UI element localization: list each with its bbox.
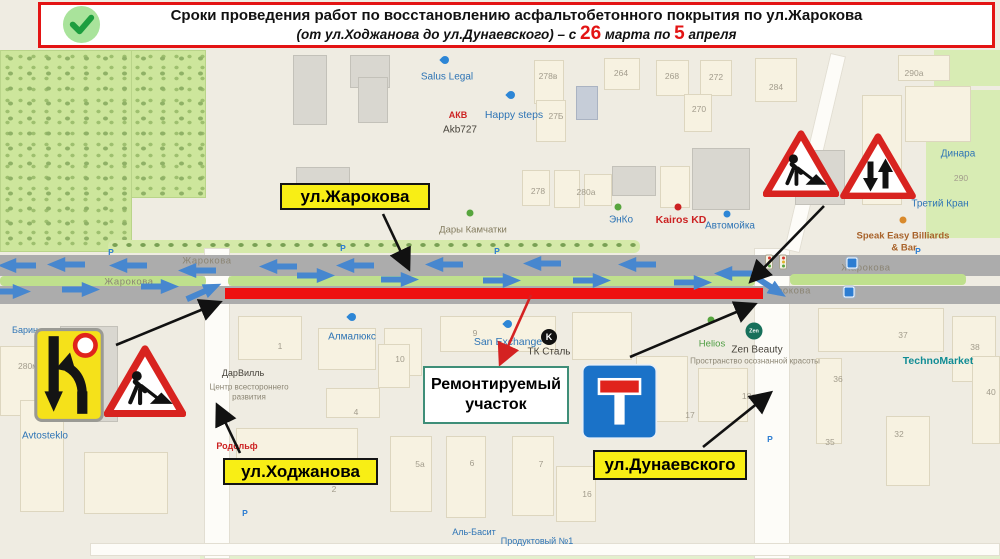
banner-subtitle-prefix: (от ул.Ходжанова до ул.Дунаевского) – с [296, 27, 580, 42]
street-name-label: Жарокова [182, 256, 231, 267]
building-number: 264 [614, 68, 628, 78]
building [755, 58, 797, 102]
building-number: 290а [905, 68, 924, 78]
building [293, 55, 327, 125]
header-banner: Сроки проведения работ по восстановлению… [38, 2, 995, 48]
building-number: 272 [709, 72, 723, 82]
parking-icon: P [761, 393, 767, 403]
poi-label: & Bar [891, 243, 916, 254]
road-median-green [790, 274, 966, 285]
brand-logo-icon: Zen [746, 323, 763, 340]
road-median-green [0, 276, 206, 286]
building [660, 166, 690, 208]
poi-label: Happy steps [485, 109, 543, 121]
building-number: 7 [539, 459, 544, 469]
building [886, 416, 930, 486]
building-number: 37 [898, 330, 907, 340]
poi-label: Аль-Басит [452, 527, 496, 537]
poi-dot-icon [675, 204, 682, 211]
label-zharokova-street: ул.Жарокова [280, 183, 430, 210]
poi-label: Продуктовый №1 [501, 536, 574, 546]
building [512, 436, 554, 516]
building-number: 270 [692, 104, 706, 114]
building [698, 368, 748, 422]
building-number: 280а [577, 187, 596, 197]
building-number: 36 [833, 374, 842, 384]
poi-label: Пространство осознанной красоты [690, 357, 820, 366]
building-number: 268 [665, 71, 679, 81]
end-date: 5 [674, 23, 685, 44]
building-number: 17 [685, 410, 694, 420]
building [536, 100, 566, 142]
building [972, 356, 1000, 444]
building [816, 358, 842, 444]
building [576, 86, 598, 120]
poi-label: ТК Сталь [527, 347, 570, 358]
poi-label: TechnoMarket [903, 355, 973, 367]
building-number: 40 [986, 387, 995, 397]
start-date: 26 [580, 23, 601, 44]
building-number: 278в [539, 71, 558, 81]
building [446, 436, 486, 518]
bus-stop-icon [844, 287, 855, 298]
poi-label: Автомойка [705, 221, 755, 232]
poi-label: Helios [699, 339, 725, 350]
dead-end-sign-icon [581, 363, 658, 440]
repair-section-callout: Ремонтируемый участок [423, 366, 569, 424]
building-number: 2 [332, 484, 337, 494]
two-way-traffic-sign-icon [840, 133, 916, 199]
building-number: 32 [894, 429, 903, 439]
roadworks-warning-sign-icon [763, 130, 839, 197]
poi-dot-icon [900, 217, 907, 224]
building-number: 6 [470, 458, 475, 468]
green-area [108, 240, 640, 253]
building [534, 60, 564, 104]
poi-label: Avtosteklo [22, 431, 68, 442]
label-khodzhanova-street: ул.Ходжанова [223, 458, 378, 485]
roadworks-announcement-image: ЖароковаЖароковаЖароковароковаSalus Lega… [0, 0, 1000, 559]
building [238, 316, 302, 360]
parking-icon: P [340, 243, 346, 253]
repair-callout-line2: участок [465, 395, 526, 415]
poi-label: Speak Easy Billiards [857, 231, 950, 242]
building-number: 4 [354, 407, 359, 417]
poi-label: Алмалюкс [328, 332, 376, 343]
building [358, 77, 388, 123]
poi-label: Salus Legal [421, 72, 473, 83]
roadworks-warning-sign-icon [104, 345, 186, 417]
green-check-icon [62, 5, 101, 44]
building-number: 35 [825, 437, 834, 447]
building [84, 452, 168, 514]
traffic-light-icon [779, 255, 787, 270]
building [612, 166, 656, 196]
building [572, 312, 632, 360]
parking-icon: P [767, 434, 773, 444]
building-number: 18а [742, 391, 756, 401]
building-number: 27Б [548, 111, 563, 121]
poi-pin-icon [439, 54, 450, 65]
building-number: 284 [769, 82, 783, 92]
poi-pin-icon [346, 311, 357, 322]
park-area [0, 50, 132, 252]
bus-stop-icon [847, 258, 858, 269]
building-number: 290 [954, 173, 968, 183]
poi-label: Динара [941, 149, 976, 160]
poi-label: ЭнКо [609, 215, 633, 226]
poi-dot-icon [467, 210, 474, 217]
building [378, 344, 410, 388]
brand-logo-icon: K [541, 329, 557, 345]
map-canvas: ЖароковаЖароковаЖароковароковаSalus Lega… [0, 0, 1000, 559]
banner-title: Сроки проведения работ по восстановлению… [171, 7, 863, 25]
parking-icon: P [494, 246, 500, 256]
traffic-light-icon [765, 255, 773, 270]
building-number: 38 [970, 342, 979, 352]
poi-label: Родольф [216, 441, 257, 451]
poi-label: АКВ [449, 110, 468, 120]
building [390, 436, 432, 512]
building-number: 278 [531, 186, 545, 196]
banner-subtitle-mid: марта по [601, 27, 674, 42]
parking-icon: P [242, 508, 248, 518]
poi-dot-icon [708, 317, 715, 324]
repair-section-red-line [225, 288, 763, 299]
poi-label: Zen Beauty [731, 345, 782, 356]
poi-label: Третий Кран [911, 199, 968, 210]
building-number: 1 [278, 341, 283, 351]
poi-label: развития [232, 393, 266, 402]
repair-callout-line1: Ремонтируемый [431, 375, 561, 395]
poi-label: Дары Камчатки [439, 225, 507, 236]
building-number: 10 [395, 354, 404, 364]
poi-pin-icon [505, 89, 516, 100]
banner-subtitle-suffix: апреля [685, 27, 737, 42]
parking-icon: P [108, 247, 114, 257]
lane-merge-detour-sign-icon [33, 328, 105, 422]
poi-dot-icon [615, 204, 622, 211]
label-dunaevskogo-street: ул.Дунаевского [593, 450, 747, 480]
building [692, 148, 750, 210]
banner-subtitle: (от ул.Ходжанова до ул.Дунаевского) – с … [296, 25, 736, 43]
poi-label: Центр всестороннего [209, 383, 288, 392]
poi-label: ДарВилль [222, 368, 264, 378]
building-number: 16 [582, 489, 591, 499]
building [818, 308, 944, 352]
poi-label: Kairos KD [656, 214, 707, 226]
poi-dot-icon [724, 211, 731, 218]
poi-label: Akb727 [443, 125, 477, 136]
building-number: 5а [415, 459, 424, 469]
